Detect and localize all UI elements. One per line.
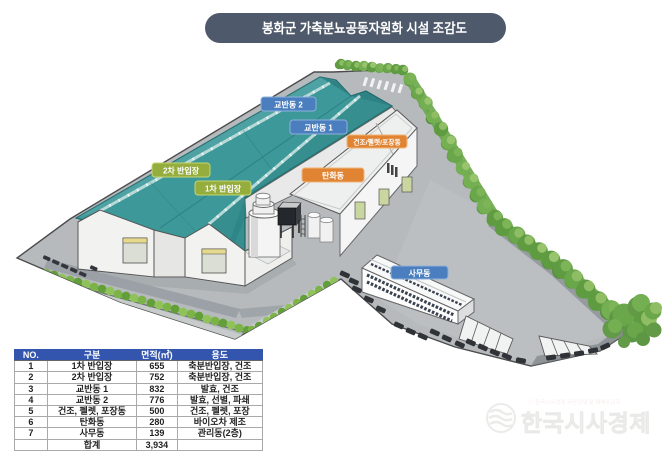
svg-text:봉화군 가축분뇨공동자원화 시설 조감도: 봉화군 가축분뇨공동자원화 시설 조감도	[262, 20, 468, 36]
svg-text:탄화동: 탄화동	[322, 171, 345, 181]
svg-text:사무동: 사무동	[408, 268, 431, 278]
svg-text:ⓒ 한국시사경제 무단전재 및 재배포금지: ⓒ 한국시사경제 무단전재 및 재배포금지	[528, 398, 621, 406]
svg-text:건조/펠렛/포장동: 건조/펠렛/포장동	[353, 138, 401, 147]
svg-text:한국시사경제: 한국시사경제	[521, 410, 651, 436]
svg-text:교반동 1: 교반동 1	[304, 123, 333, 133]
svg-text:교반동 2: 교반동 2	[274, 100, 303, 110]
svg-text:1차 반입장: 1차 반입장	[205, 184, 242, 194]
svg-text:2차 반입장: 2차 반입장	[163, 166, 200, 176]
